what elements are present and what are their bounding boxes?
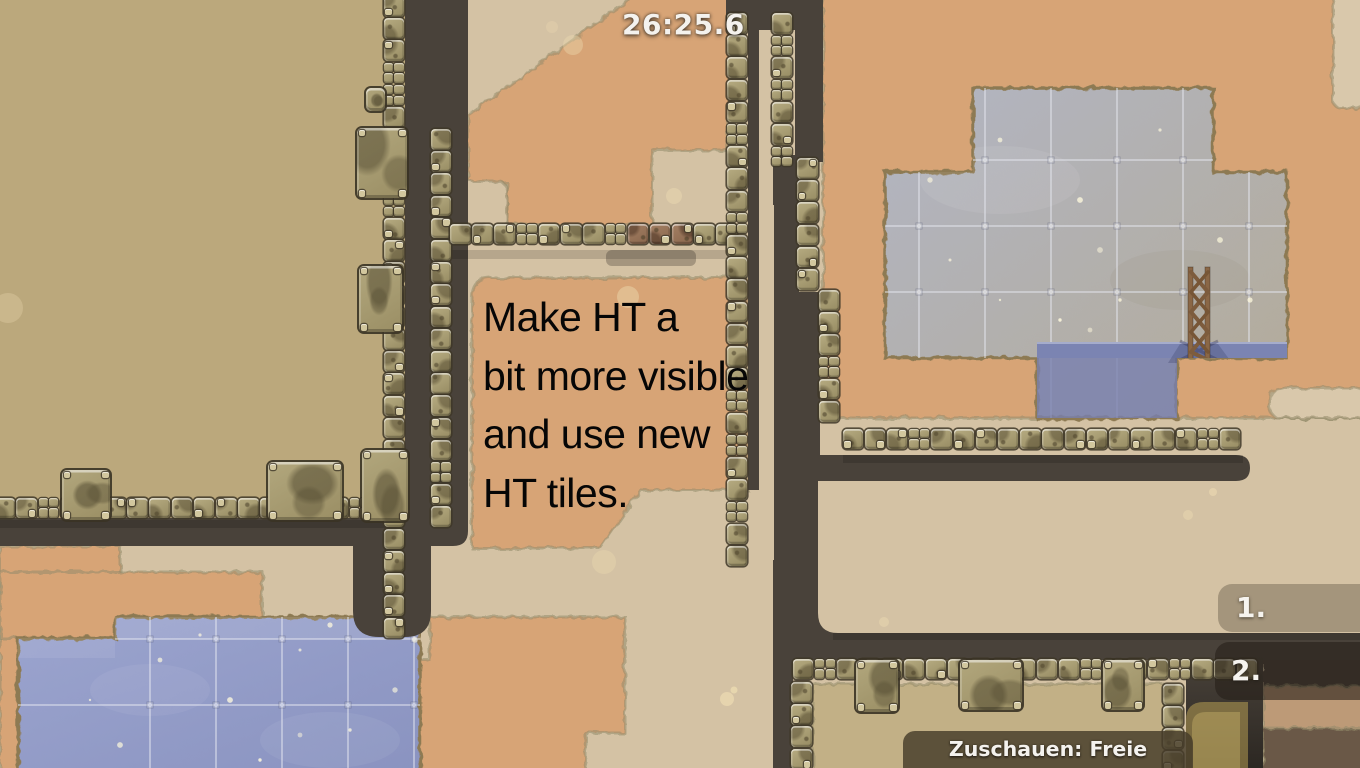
- spectate-mode-bar: Zuschauen: Freie Ansicht: [903, 731, 1193, 768]
- annotation-line: HT tiles.: [483, 464, 748, 523]
- game-viewport[interactable]: 26:25.6 1. 2. Zuschauen: Freie Ansicht M…: [0, 0, 1360, 768]
- annotation-line: Make HT a: [483, 288, 748, 347]
- tan-pillar: [759, 205, 774, 560]
- ground-khaki: [0, 0, 405, 546]
- glow-zone: [1186, 702, 1248, 768]
- rank-badge-2: 2.: [1215, 642, 1360, 700]
- annotation-note: Make HT a bit more visible and use new H…: [483, 288, 748, 522]
- race-timer: 26:25.6: [622, 8, 745, 41]
- annotation-line: and use new: [483, 405, 748, 464]
- annotation-line: bit more visible: [483, 347, 748, 406]
- rank-badge-1: 1.: [1218, 584, 1360, 632]
